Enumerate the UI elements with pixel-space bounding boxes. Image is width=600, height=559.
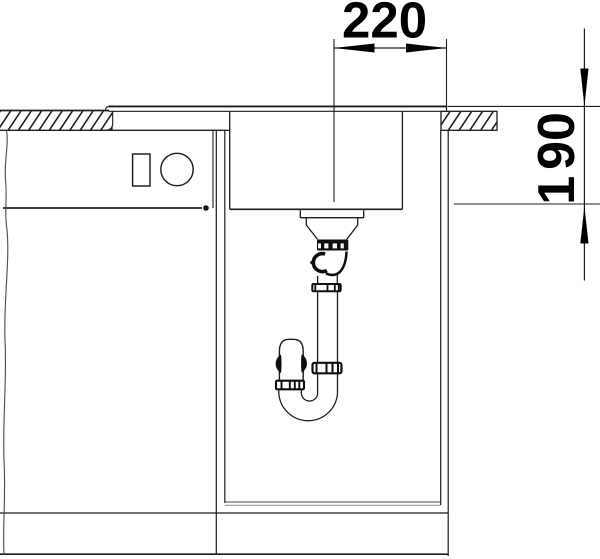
- svg-text:190: 190: [528, 112, 586, 205]
- svg-text:220: 220: [342, 0, 427, 48]
